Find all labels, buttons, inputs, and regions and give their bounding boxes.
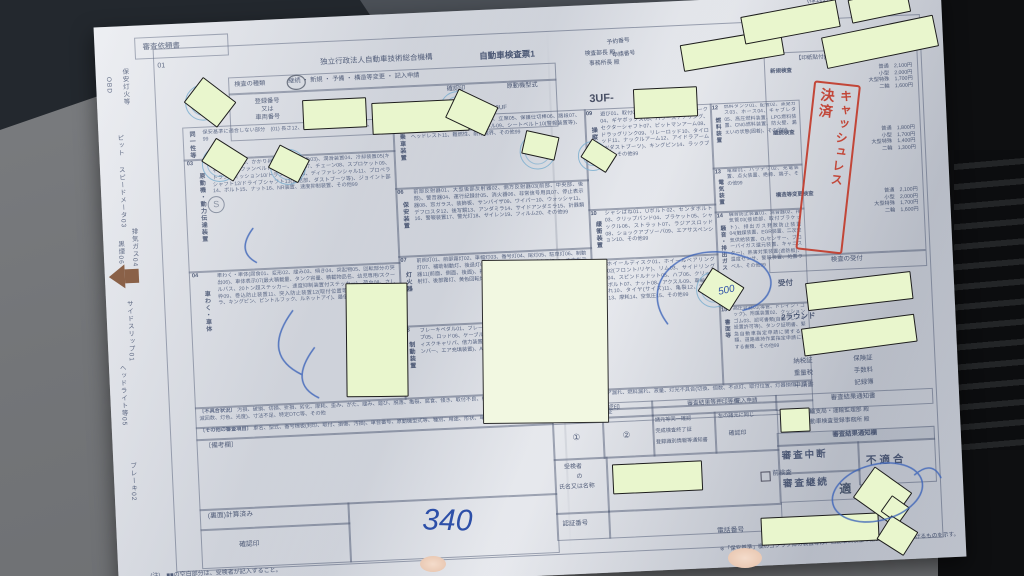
margin-label-exhaust: 排気ガス04 xyxy=(129,228,139,268)
fee-group1-name: 新規検査 xyxy=(770,68,792,76)
margin-label-pit: ピット xyxy=(114,134,123,157)
round-label: 2ラウンド xyxy=(781,311,816,322)
confirm-seal-label-bottom: 確認印 xyxy=(239,541,260,550)
left-arrow-icon xyxy=(108,264,125,289)
section-01-label: 同一性等 xyxy=(186,131,195,159)
section-14-num: 14 xyxy=(717,213,724,220)
trim-ridges xyxy=(954,150,1024,450)
reentry-circle-1: ① xyxy=(572,432,580,443)
phone-label: 電話番号 xyxy=(717,527,745,537)
thumbnail xyxy=(728,548,762,568)
section-04-num: 04 xyxy=(192,273,199,280)
margin-label-speedometer: スピードメータ03 xyxy=(116,166,127,228)
engine-model-label: 原動機型式 xyxy=(506,81,537,90)
handwritten-340: 340 xyxy=(422,503,473,538)
redaction-box xyxy=(345,283,408,398)
inspection-sheet: 審査依頼書 01 保安灯火等 OBD ピット スピードメータ03 排気ガス04 … xyxy=(94,0,967,576)
doc-insurance: 保険証 xyxy=(853,355,873,364)
doc-tax-cert: 納税証 xyxy=(793,357,813,366)
doc-fee: 手数料 xyxy=(854,367,874,376)
redaction-box xyxy=(780,407,811,432)
section-07-num: 07 xyxy=(400,258,407,265)
photo-scene: 審査依頼書 01 保安灯火等 OBD ピット スピードメータ03 排気ガス04 … xyxy=(0,0,1024,576)
section-09-body: 遊び01、取付02、ハンドル03、かじ取ホーク04、ギヤボックス05、パワーステ… xyxy=(600,107,712,206)
redaction-box xyxy=(302,97,367,130)
section-12-num: 12 xyxy=(712,105,719,112)
fee-group2-name: 継続検査 xyxy=(773,130,795,138)
auth-number-label: 認証番号 xyxy=(562,520,588,529)
result-interrupt: 審査中断 xyxy=(781,449,828,463)
margin-label-sideslip: サイドスリップ01 xyxy=(124,300,135,362)
section-10-label: 緩衝装置 xyxy=(593,221,602,249)
result-fail: 不適合 xyxy=(866,453,907,468)
doc-weight-tax: 重量税 xyxy=(794,369,814,378)
same-as-left-confirm: 確認印 xyxy=(729,430,747,438)
section-04-label: 車わく・車体 xyxy=(202,291,211,333)
doc-record-book: 記録簿 xyxy=(854,379,874,388)
fingernail xyxy=(420,556,446,572)
other-items-label: 〔その他の審査項目〕 xyxy=(200,426,252,434)
result-pass: 適 xyxy=(839,482,852,498)
section-13-num: 13 xyxy=(715,169,722,176)
section-06-label: 保安装置 xyxy=(400,201,409,229)
result-continue: 審査継続 xyxy=(783,477,830,491)
margin-label-headlight: ヘッドライト等05 xyxy=(117,364,128,426)
section-05-label: 乗車装置 xyxy=(397,134,406,162)
entry-application-label: 記入申請 xyxy=(735,398,758,406)
section-12-label: 燃料装置 xyxy=(713,117,721,144)
section-03-num: 03 xyxy=(187,161,194,168)
examinee-label-2: の xyxy=(576,474,582,482)
reentry-circle-2: ② xyxy=(622,430,630,441)
margin-label-smoke: 黒煙06 xyxy=(115,240,124,265)
margin-label-lamps: 保安灯火等 xyxy=(119,68,129,106)
chassis-prefix: 3UF- xyxy=(589,92,614,107)
redaction-box xyxy=(633,86,698,119)
section-15-label: 書面等 xyxy=(722,319,730,339)
receipt-label: 受付 xyxy=(778,278,793,288)
section-06-body: 前部反射器01、大型後部反射器02、側方反射器03(前部、中央部、後部)、警音器… xyxy=(413,181,586,253)
redaction-box xyxy=(481,259,609,424)
section-13-label: 電気装置 xyxy=(716,179,724,206)
section-06-num: 06 xyxy=(397,190,404,197)
section-10-num: 10 xyxy=(590,211,597,218)
section-10-body: シャシばね01、Uボルト02、センタボルト03、クリップバンド04、ブラケット0… xyxy=(604,206,714,257)
redaction-box xyxy=(612,460,703,494)
margin-label-brake: ブレーキ02 xyxy=(127,462,137,502)
margin-label-obd: OBD xyxy=(104,77,113,94)
section-09-num: 09 xyxy=(586,111,593,118)
confirm-seal-box-bottom xyxy=(200,522,352,569)
remarks-label: 〔備考欄〕 xyxy=(205,441,238,451)
